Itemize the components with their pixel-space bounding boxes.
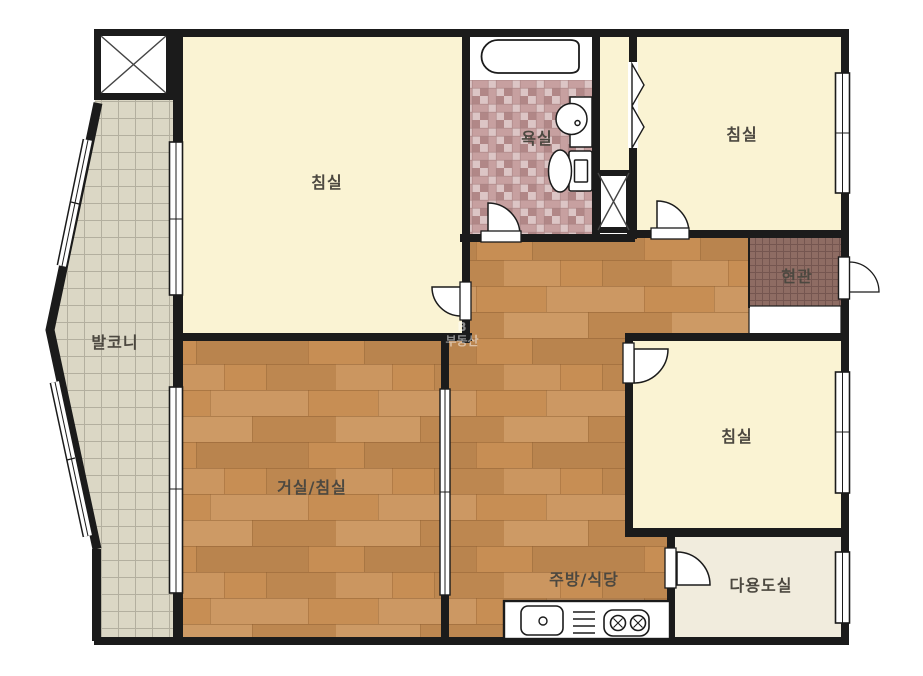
label-balcony: 발코니 [91, 333, 138, 352]
window-bedroom2 [836, 73, 850, 193]
kitchen-counter [504, 601, 670, 639]
window-living-balcony [170, 387, 183, 593]
balcony-floor [49, 100, 176, 641]
label-bedroom-right: 침실 [721, 427, 752, 446]
window-utility [836, 552, 850, 623]
duct-shaft-top-left [98, 33, 170, 97]
watermark-line1: B [457, 320, 466, 334]
wall-hall-bedroom3 [625, 333, 849, 341]
gas-stove [604, 610, 649, 636]
bathtub [482, 40, 579, 73]
wall-bedroom1-bottom [173, 333, 472, 341]
duct-shaft-center [598, 173, 629, 230]
label-entrance: 현관 [781, 267, 812, 286]
wall-top [94, 29, 849, 37]
sink-drain [539, 617, 547, 625]
label-bedroom-top-right: 침실 [726, 125, 757, 144]
watermark-line2: 부동산 [445, 333, 478, 348]
wall-bottom [94, 637, 849, 645]
toilet [549, 150, 593, 192]
entrance-step-edge [748, 238, 750, 308]
front-door [839, 257, 880, 299]
wall-bedroom3-bottom [625, 528, 849, 537]
entrance-shoe-cabinet [749, 306, 841, 334]
label-bathroom: 욕실 [521, 129, 552, 148]
label-living-bedroom: 거실/침실 [277, 478, 347, 497]
floorplan-canvas: 발코니 침실 욕실 침실 현관 거실/침실 침실 주방/식당 다용도실 B 부동… [0, 0, 923, 676]
window-bedroom1-balcony [170, 142, 183, 295]
label-utility-room: 다용도실 [730, 576, 793, 595]
floorplan-svg: 발코니 침실 욕실 침실 현관 거실/침실 침실 주방/식당 다용도실 B 부동… [0, 0, 923, 676]
wall-balcony-left-lower [92, 549, 101, 641]
window-bedroom-right [836, 372, 850, 493]
window-living-hall-sliding [440, 389, 450, 595]
closet-strip-floor [596, 33, 633, 173]
label-bedroom-top-left: 침실 [311, 173, 342, 192]
label-kitchen-dining: 주방/식당 [549, 570, 619, 589]
